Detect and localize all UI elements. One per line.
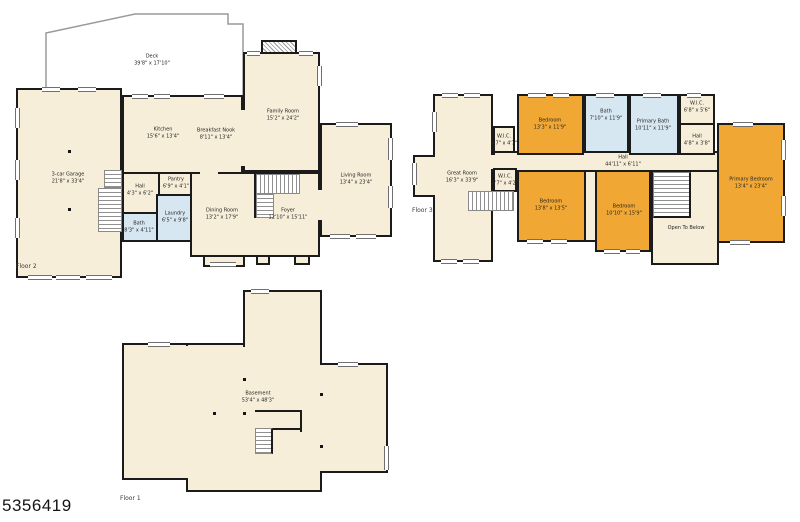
window-marker [781, 140, 786, 160]
garage-door-marker [86, 275, 112, 280]
basement-wing [322, 363, 388, 473]
window-marker [330, 234, 350, 239]
window-marker [626, 249, 640, 254]
opening [200, 170, 218, 176]
window-marker [15, 218, 20, 238]
floor-label-1: Floor 1 [120, 495, 141, 502]
opening [431, 157, 435, 195]
stair-wall [273, 428, 302, 430]
room-label-great: Great Room 16'3" x 33'9" [446, 171, 479, 184]
room-label-hall-small: Hall 4'8" x 3'8" [684, 134, 710, 147]
window-marker [210, 262, 236, 267]
window-marker [15, 160, 20, 180]
room-label-open-below: Open To Below [668, 225, 705, 232]
stairs [256, 174, 300, 194]
room-label-bedroom-bm: Bedroom 10'10" x 15'9" [606, 204, 642, 217]
room-label-garage: 3-car Garage 21'8" x 33'4" [52, 172, 85, 185]
room-label-wic-1: W.I.C. 4'7" x 4'7" [491, 134, 517, 147]
room-label-family: Family Room 15'2" x 24'2" [267, 109, 300, 122]
window-marker [442, 93, 458, 98]
window-marker [463, 259, 479, 264]
window-marker [317, 66, 322, 86]
column-dot [68, 208, 71, 211]
floor-label-2: Floor 2 [16, 263, 37, 270]
window-marker [247, 51, 260, 56]
opening [319, 365, 325, 471]
window-marker [388, 138, 393, 160]
room-label-wic-2: W.I.C. 4'7" x 4'2" [492, 174, 518, 187]
window-marker [388, 186, 393, 208]
opening [241, 110, 245, 166]
window-marker [596, 93, 614, 98]
window-marker [441, 259, 457, 264]
floor-label-3: Floor 3 [412, 207, 433, 214]
room-label-kitchen: Kitchen 15'6" x 13'4" [147, 127, 180, 140]
room-label-wic-3: W.I.C. 6'8" x 5'6" [684, 101, 710, 114]
window-marker [551, 239, 567, 244]
room-label-hall-corridor: Hall 44'11" x 6'11" [605, 155, 641, 168]
window-marker [412, 163, 417, 185]
room-label-breakfast-nook: Breakfast Nook 8'11" x 13'4" [197, 128, 235, 141]
opening [318, 190, 322, 220]
fireplace-chimney [261, 40, 297, 54]
column-dot [213, 412, 216, 415]
window-marker [781, 196, 786, 216]
listing-id: 5356419 [2, 496, 72, 516]
window-marker [299, 51, 313, 56]
window-marker [528, 93, 546, 98]
column-dot [320, 445, 323, 448]
opening [491, 155, 495, 169]
room-label-bedroom-bl: Bedroom 13'8" x 13'5" [535, 199, 568, 212]
window-marker [527, 239, 543, 244]
room-label-hall-f2: Hall 4'3" x 6'2" [127, 184, 153, 197]
stairs [468, 191, 514, 211]
column-dot [68, 150, 71, 153]
stairs [98, 188, 122, 232]
room-label-laundry: Laundry 6'5" x 9'8" [162, 211, 188, 224]
opening [185, 346, 190, 478]
window-marker [730, 240, 750, 245]
room-label-primary-bath: Primary Bath 10'11" x 11'9" [635, 119, 671, 132]
window-marker [733, 122, 753, 127]
room-label-basement: Basement 53'4" x 48'3" [242, 391, 275, 404]
window-marker [336, 122, 358, 127]
window-marker [338, 362, 358, 367]
floorplan-sheet: Deck 39'8" x 17'10" 3-car Garage 21'8" x… [0, 0, 800, 522]
room-label-bath-f2: Bath 8'3" x 4'11" [124, 221, 153, 234]
basement-left [122, 343, 188, 480]
room-label-bedroom-top: Bedroom 13'3" x 11'9" [534, 118, 567, 131]
room-bath-f3 [584, 94, 629, 153]
window-marker [464, 93, 480, 98]
room-label-bath-f3: Bath 7'10" x 11'9" [590, 109, 623, 122]
window-marker [78, 87, 96, 92]
room-label-deck: Deck 39'8" x 17'10" [134, 54, 170, 67]
window-marker [148, 342, 170, 347]
basement-stem [243, 290, 322, 347]
room-label-living: Living Room 13'4" x 23'4" [340, 173, 373, 186]
window-marker [384, 446, 389, 470]
column-dot [320, 393, 323, 396]
garage-door-marker [28, 275, 52, 280]
stairs [104, 170, 122, 188]
window-marker [687, 93, 701, 98]
window-marker [643, 93, 661, 98]
garage-door-marker [56, 275, 80, 280]
window-marker [204, 94, 224, 99]
window-marker [604, 249, 620, 254]
window-marker [432, 112, 437, 132]
room-label-foyer: Foyer 12'10" x 15'11" [269, 208, 308, 221]
column-dot [243, 378, 246, 381]
window-marker [356, 234, 376, 239]
stairs [255, 428, 273, 454]
window-marker [251, 289, 269, 294]
room-label-dining: Dining Room 13'2" x 17'9" [206, 208, 239, 221]
window-marker [553, 93, 569, 98]
window-marker [154, 94, 170, 99]
column-dot [243, 412, 246, 415]
stairs [653, 172, 691, 218]
room-label-primary-bedroom: Primary Bedroom 13'4" x 23'4" [729, 177, 773, 190]
window-marker [15, 108, 20, 128]
stair-wall [255, 410, 302, 412]
window-marker [42, 87, 60, 92]
room-label-pantry: Pantry 6'9" x 4'1" [163, 177, 189, 190]
window-marker [132, 94, 148, 99]
